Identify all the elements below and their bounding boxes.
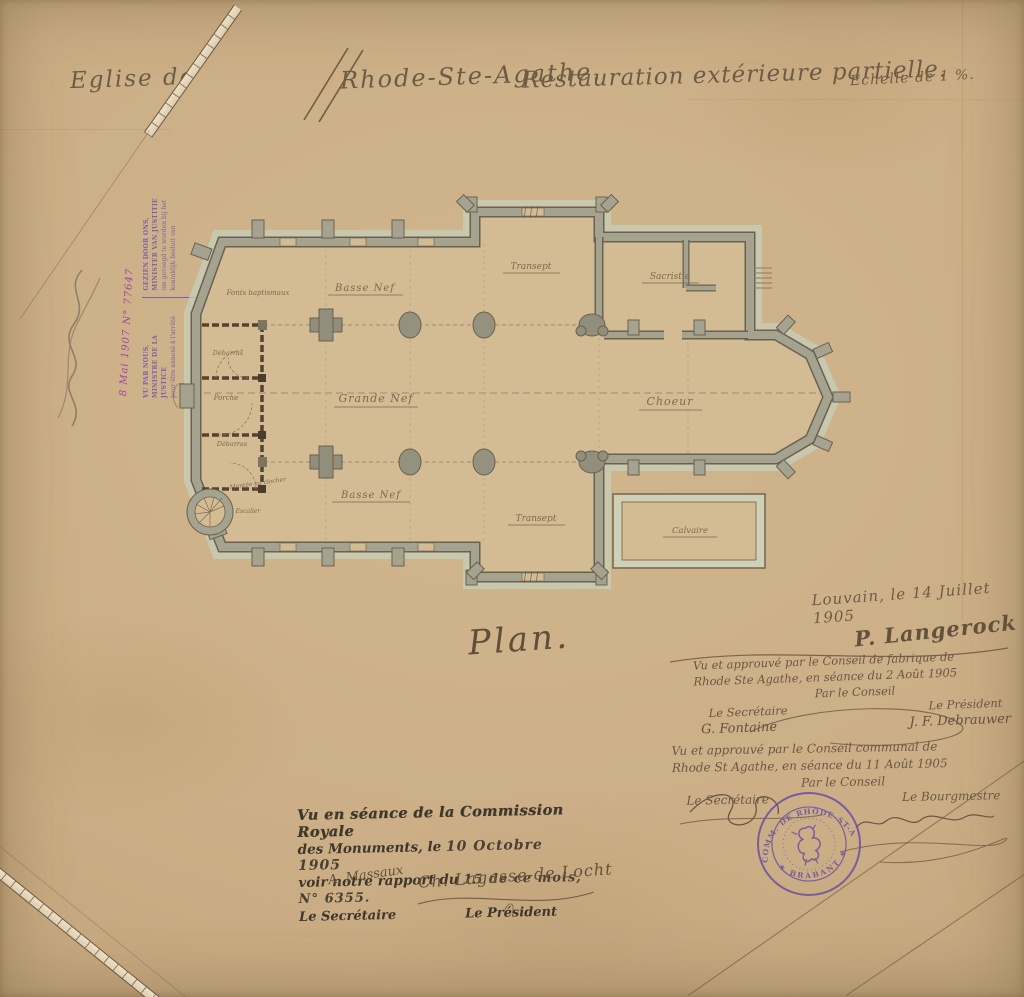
scanned-drawing-sheet: Eglise de Rhode-Ste-Agathe. Restauration…	[0, 0, 1024, 997]
label-choeur: Choeur	[647, 395, 694, 408]
president-flourish	[750, 709, 963, 746]
label-debarras-bas: Débarras	[216, 440, 248, 448]
architect-flourish	[670, 648, 1008, 662]
minister-signature-scribble	[42, 262, 122, 440]
label-grande-nef: Grande Nef	[339, 392, 415, 405]
label-sacristie: Sacristie	[650, 272, 690, 282]
stray-line	[0, 846, 188, 997]
burgomaster-signature-scribble	[856, 815, 994, 828]
commission-president-flourish	[412, 882, 602, 918]
lion-rampant-emblem	[791, 825, 824, 868]
fold-crease	[688, 99, 1024, 100]
floor-plan: Fonts baptismaux Basse Nef Transept Sacr…	[158, 192, 858, 592]
label-transept-sud: Transept	[516, 514, 557, 524]
commission-line2-static: des Monuments, le	[298, 839, 442, 858]
label-basse-nef-sud: Basse Nef	[340, 490, 402, 501]
entrance-steps	[173, 384, 178, 408]
label-debarras-haut: Débarras	[212, 349, 244, 357]
label-basse-nef-nord: Basse Nef	[334, 283, 396, 294]
label-escalier: Escalier	[235, 508, 262, 515]
label-transept-nord: Transept	[511, 262, 552, 272]
commission-secretary-label: Le Secrétaire	[299, 908, 396, 925]
label-porche: Porche	[213, 394, 239, 402]
commission-line1: Vu en séance de la Commission Royale	[297, 801, 584, 841]
west-porch	[180, 384, 194, 408]
fold-crease	[962, 0, 963, 620]
ruler-edge-bottom-left	[0, 865, 167, 997]
label-fonts-baptismaux: Fonts baptismaux	[226, 289, 290, 297]
plan-caption: Plan.	[467, 617, 571, 664]
stair-turret	[187, 489, 233, 535]
label-calvaire: Calvaire	[672, 526, 708, 536]
